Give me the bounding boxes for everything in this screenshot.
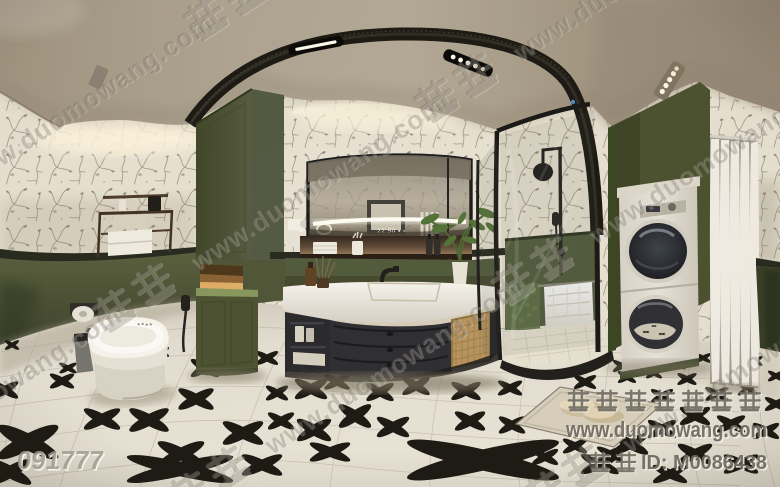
- svg-text:091777: 091777: [15, 445, 105, 475]
- svg-text:ID: M0086438: ID: M0086438: [641, 452, 767, 474]
- svg-text:www.duomowang.com: www.duomowang.com: [565, 417, 767, 442]
